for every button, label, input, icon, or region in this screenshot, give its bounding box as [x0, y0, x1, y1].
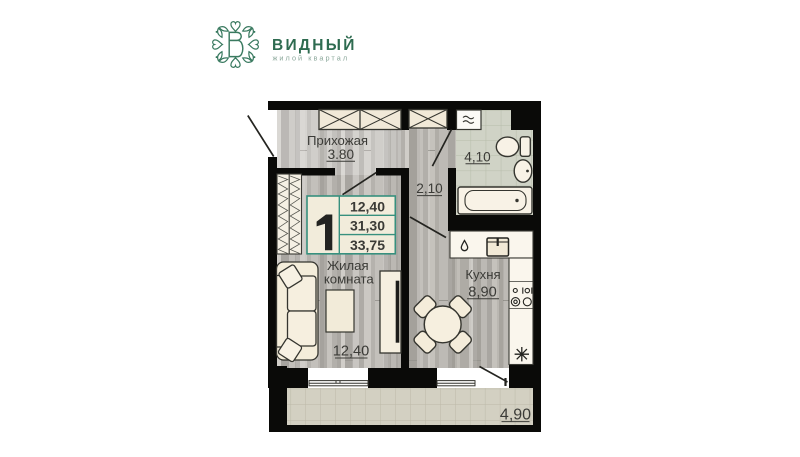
svg-text:12,40: 12,40 — [350, 199, 385, 215]
svg-text:12,40: 12,40 — [333, 344, 370, 360]
svg-text:2,10: 2,10 — [416, 181, 443, 196]
svg-text:4,90: 4,90 — [500, 406, 531, 423]
svg-text:Прихожая: Прихожая — [307, 133, 368, 148]
svg-text:4,10: 4,10 — [464, 150, 491, 165]
svg-text:8,90: 8,90 — [468, 284, 496, 300]
svg-text:ВИДНЫЙ: ВИДНЫЙ — [272, 36, 357, 54]
svg-text:33,75: 33,75 — [350, 237, 385, 253]
svg-text:31,30: 31,30 — [350, 218, 385, 234]
svg-text:жилой квартал: жилой квартал — [273, 53, 350, 62]
svg-text:3.80: 3.80 — [328, 147, 355, 162]
svg-text:комната: комната — [324, 271, 375, 286]
svg-text:Кухня: Кухня — [465, 267, 500, 282]
